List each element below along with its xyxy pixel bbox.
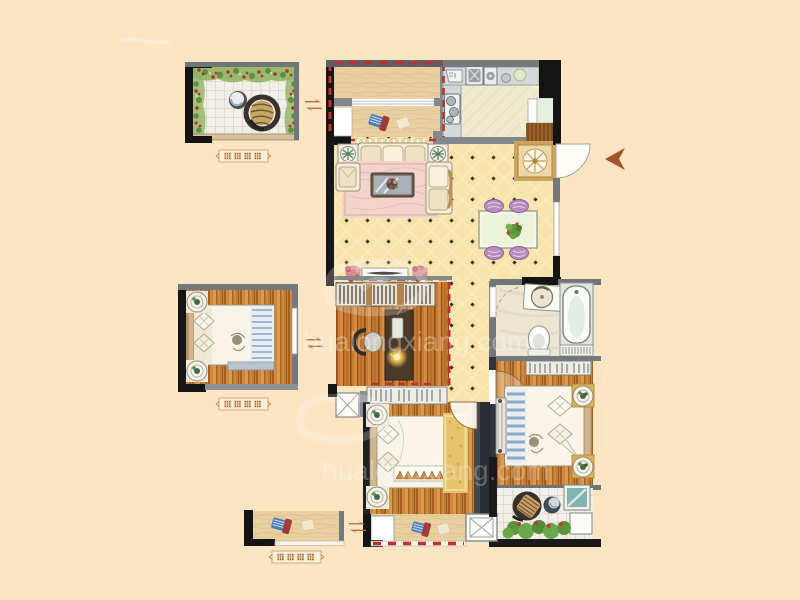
svg-text:hualongxiang.com: hualongxiang.com: [322, 455, 549, 486]
svg-text:hualongxiang.com: hualongxiang.com: [303, 326, 530, 357]
